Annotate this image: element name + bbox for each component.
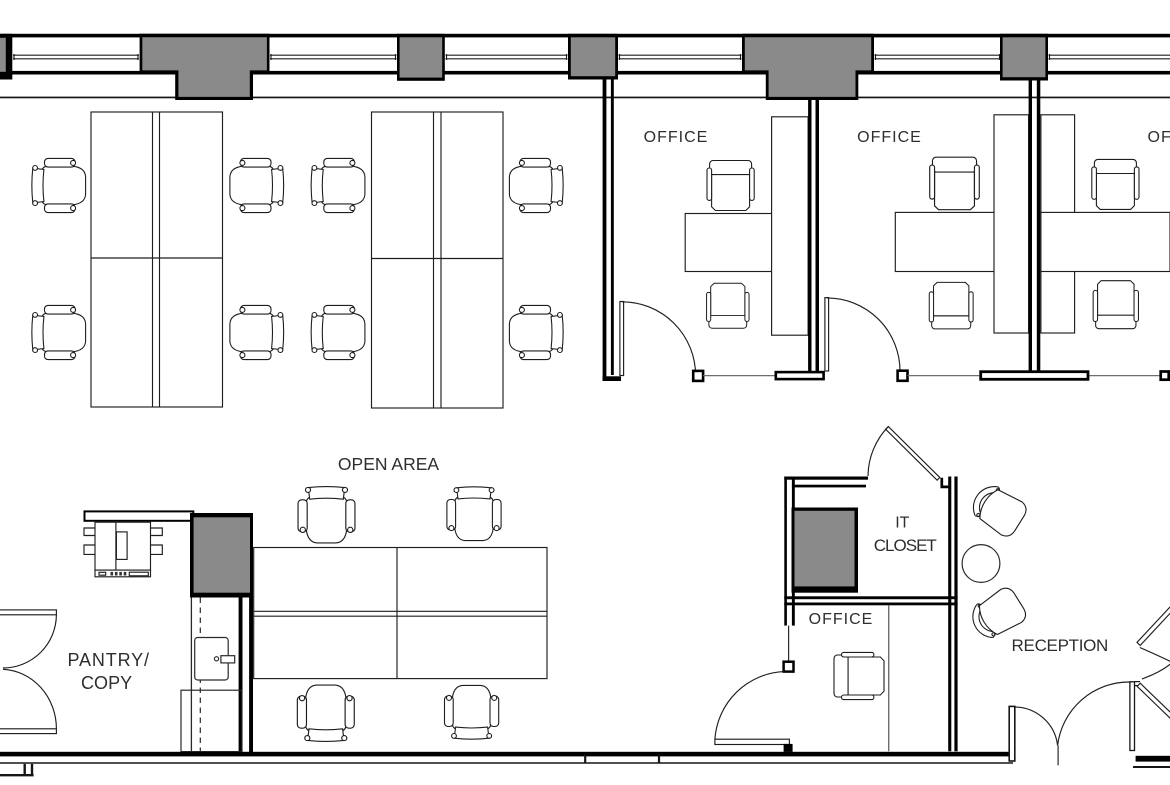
svg-text:CLOSET: CLOSET — [874, 536, 937, 555]
svg-text:COPY: COPY — [81, 673, 132, 693]
svg-text:OFFICE: OFFICE — [1148, 129, 1170, 146]
svg-text:OFFICE: OFFICE — [857, 129, 922, 146]
svg-text:RECEPTION: RECEPTION — [1012, 636, 1108, 655]
svg-text:OFFICE: OFFICE — [644, 129, 709, 146]
svg-text:OPEN AREA: OPEN AREA — [338, 454, 439, 474]
svg-text:PANTRY/: PANTRY/ — [68, 650, 150, 670]
svg-text:IT: IT — [895, 515, 909, 532]
svg-text:OFFICE: OFFICE — [809, 611, 874, 628]
